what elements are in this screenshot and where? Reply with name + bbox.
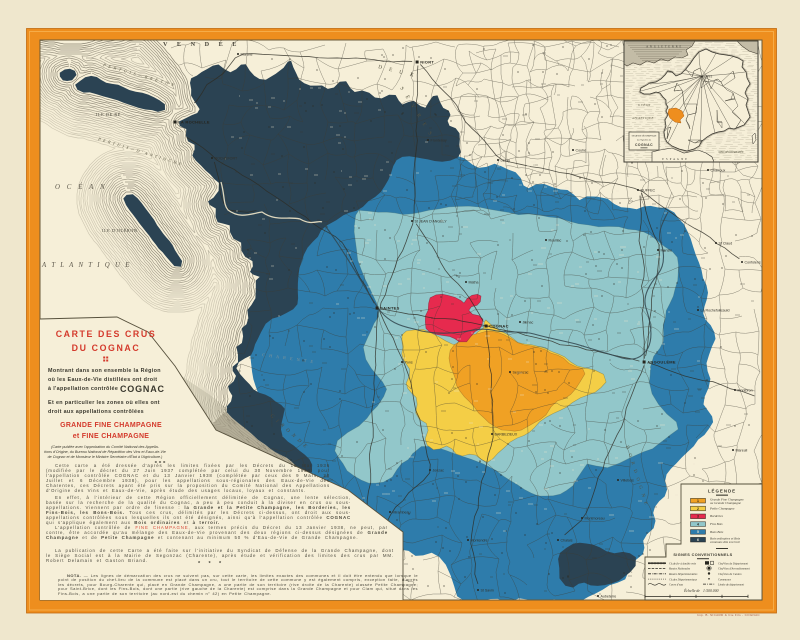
svg-text:et FINE CHAMPAGNE: et FINE CHAMPAGNE (73, 433, 150, 440)
svg-text:Routes Départementales: Routes Départementales (668, 572, 698, 576)
svg-text:LA ROCHELLE: LA ROCHELLE (178, 119, 210, 124)
svg-text:A N G L E T E R R E: A N G L E T E R R E (646, 46, 682, 49)
svg-text:Cours d'eau: Cours d'eau (669, 583, 684, 587)
svg-text:Limite de département: Limite de département (717, 583, 744, 587)
svg-text:Marans: Marans (241, 53, 253, 57)
svg-text:Et en particulier les zones où: Et en particulier les zones où elles ont (48, 400, 160, 406)
svg-text:Chalais: Chalais (561, 539, 573, 543)
svg-text:Bons Bois: Bons Bois (710, 530, 724, 534)
svg-text:COGNAC: COGNAC (489, 323, 509, 328)
svg-text:Couhé: Couhé (576, 149, 587, 153)
svg-text:des Vignobles de: des Vignobles de (637, 140, 651, 142)
svg-text:A T L A N T I Q U E: A T L A N T I Q U E (41, 262, 131, 269)
svg-text:Jonzac: Jonzac (433, 469, 445, 473)
svg-text:Petite Champagne: Petite Champagne (709, 506, 735, 510)
svg-text:6: 6 (697, 538, 699, 542)
svg-text:PARIS: PARIS (704, 75, 712, 79)
svg-text:Mansle: Mansle (661, 249, 673, 253)
svg-text:Mirambeau: Mirambeau (393, 511, 411, 515)
svg-text:SIGNES CONVENTIONNELS: SIGNES CONVENTIONNELS (673, 553, 732, 557)
svg-text:5: 5 (697, 530, 699, 534)
svg-text:Segonzac: Segonzac (513, 371, 529, 375)
svg-text:CARTE DES CRUS: CARTE DES CRUS (56, 329, 157, 339)
svg-text:Chef-lieu d'Arrondissement: Chef-lieu d'Arrondissement (718, 567, 750, 571)
svg-text:Villebois: Villebois (621, 479, 635, 483)
svg-text:COGNAC: COGNAC (635, 143, 653, 147)
svg-text:ou Grande Champagne: ou Grande Champagne (710, 501, 741, 505)
svg-text:NIORT: NIORT (420, 59, 434, 64)
svg-text:Montbron: Montbron (738, 389, 753, 393)
svg-text:Confolens: Confolens (745, 261, 761, 265)
svg-text:DU COGNAC: DU COGNAC (72, 343, 141, 353)
svg-text:V E N D É E: V E N D É E (163, 40, 240, 48)
svg-text:Fins Bois: Fins Bois (709, 522, 723, 526)
svg-text:Chef-lieu de Canton: Chef-lieu de Canton (718, 572, 742, 576)
svg-text:Lezay: Lezay (501, 159, 511, 163)
svg-text:LÉGENDE: LÉGENDE (708, 489, 736, 494)
svg-text:GRANDE FINE CHAMPAGNE: GRANDE FINE CHAMPAGNE (60, 422, 162, 429)
svg-text:Aubeterre: Aubeterre (601, 595, 617, 599)
svg-text:Jarnac: Jarnac (523, 321, 534, 325)
svg-text:St Claud: St Claud (719, 242, 733, 246)
svg-text:(Carte publiée avec l'approbat: (Carte publiée avec l'approbation du Com… (51, 445, 160, 449)
svg-text:2: 2 (697, 507, 699, 511)
svg-text:Borderies: Borderies (710, 514, 724, 518)
svg-text:droit aux appellations contrôl: droit aux appellations contrôlées (48, 409, 144, 415)
svg-text:ROCHEFORT: ROCHEFORT (215, 157, 238, 161)
svg-text:RUFFEC: RUFFEC (641, 189, 656, 193)
svg-text:Matha: Matha (469, 281, 479, 285)
svg-text:O C É A N: O C É A N (55, 183, 107, 191)
svg-text:Montendre: Montendre (471, 539, 488, 543)
svg-text:BARBEZIEUX: BARBEZIEUX (495, 433, 518, 437)
svg-text:Charroux: Charroux (711, 169, 726, 173)
svg-text:tions d'Origine, du Bureau Nat: tions d'Origine, du Bureau National de R… (44, 450, 166, 454)
svg-text:ATLANTIQUE: ATLANTIQUE (631, 116, 654, 120)
svg-text:La Rochefoucauld: La Rochefoucauld (701, 309, 730, 313)
svg-text:communs dits à terroir: communs dits à terroir (710, 540, 741, 544)
svg-text:MER MÉDITERRANÉE: MER MÉDITERRANÉE (717, 151, 744, 154)
svg-text:Ch.de fer à double voie: Ch.de fer à double voie (669, 561, 697, 565)
svg-text:1: 1 (697, 499, 699, 503)
svg-text:Mareuil: Mareuil (736, 449, 748, 453)
svg-text:E S P A G N E: E S P A G N E (662, 158, 687, 161)
svg-text:Frontenay: Frontenay (431, 139, 447, 143)
svg-text:Pons: Pons (405, 361, 413, 365)
svg-text:1:500.000: 1:500.000 (703, 589, 719, 593)
svg-text:4: 4 (697, 522, 699, 526)
svg-text:3: 3 (697, 515, 699, 519)
svg-text:à l'appellation contrôlée: à l'appellation contrôlée (48, 386, 118, 392)
svg-text:SAINTES: SAINTES (380, 305, 399, 310)
svg-text:COGNAC: COGNAC (120, 384, 165, 394)
svg-text:St JEAN D'ANGÉLY: St JEAN D'ANGÉLY (415, 219, 448, 224)
svg-text:Imp. B. SICARD & Cie Fils - CO: Imp. B. SICARD & Cie Fils - COGNAC (697, 613, 760, 617)
svg-text:ANGOULÊME: ANGOULÊME (647, 359, 676, 364)
svg-text:SITUATION GÉOGRAPHIQUE: SITUATION GÉOGRAPHIQUE (632, 135, 658, 138)
svg-text:où les Eaux-de-Vie distillées: où les Eaux-de-Vie distillées ont droit (48, 377, 157, 383)
svg-text:ILE D'OLÉRON: ILE D'OLÉRON (102, 228, 138, 233)
svg-text:Routes Nationales: Routes Nationales (668, 567, 691, 571)
svg-text:de Cognac et de Monsieur le Mi: de Cognac et de Monsieur le Ministre Sec… (48, 454, 164, 459)
svg-text:ILE DE RÉ: ILE DE RÉ (96, 112, 121, 117)
svg-text:Ch.des Départementaux: Ch.des Départementaux (669, 577, 698, 581)
svg-text:Communes: Communes (718, 577, 732, 581)
svg-text:OCÉAN: OCÉAN (638, 102, 651, 107)
svg-text:Montmoreau: Montmoreau (585, 517, 605, 521)
svg-text:Montrant dans son ensemble la: Montrant dans son ensemble la Région (48, 368, 161, 374)
svg-text:Chef-lieu de Département: Chef-lieu de Département (718, 561, 748, 565)
svg-text:Rouillac: Rouillac (549, 239, 562, 243)
svg-text:St Savin: St Savin (481, 589, 494, 593)
svg-text:Échelle de: Échelle de (683, 588, 700, 593)
